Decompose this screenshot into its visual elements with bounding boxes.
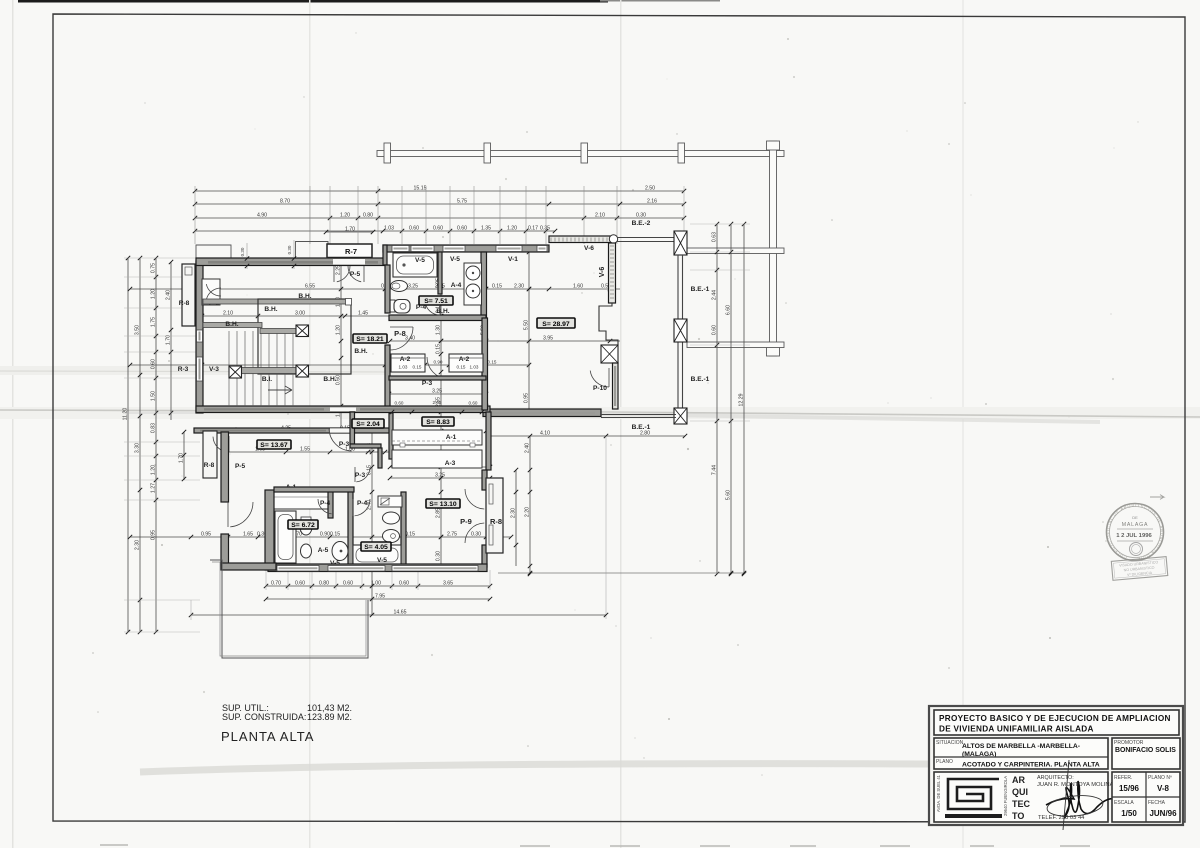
svg-text:2.10: 2.10 xyxy=(595,213,605,219)
svg-text:1.35: 1.35 xyxy=(481,226,491,232)
svg-text:V-6: V-6 xyxy=(599,267,606,278)
svg-text:3.50: 3.50 xyxy=(135,325,141,335)
svg-text:2.85: 2.85 xyxy=(436,508,442,518)
svg-text:0.60: 0.60 xyxy=(151,359,157,369)
svg-text:1.20: 1.20 xyxy=(336,325,342,335)
svg-text:123.89 M2.: 123.89 M2. xyxy=(307,712,352,722)
svg-text:0.75: 0.75 xyxy=(151,263,157,273)
svg-text:B.H.: B.H. xyxy=(323,376,336,383)
svg-text:0.60: 0.60 xyxy=(295,581,305,587)
svg-text:R-3: R-3 xyxy=(178,366,189,373)
svg-text:QUI: QUI xyxy=(1012,787,1028,797)
svg-text:2.30: 2.30 xyxy=(514,284,524,290)
svg-text:1.27: 1.27 xyxy=(151,483,157,493)
svg-text:3.25: 3.25 xyxy=(408,284,418,290)
svg-text:P-5: P-5 xyxy=(235,463,246,470)
svg-text:R-7: R-7 xyxy=(345,247,357,256)
svg-text:7.44: 7.44 xyxy=(712,465,718,475)
svg-text:A-3: A-3 xyxy=(445,460,456,467)
svg-text:PROMOTOR: PROMOTOR xyxy=(1114,740,1144,746)
svg-text:0.60: 0.60 xyxy=(469,401,478,406)
svg-text:1.20: 1.20 xyxy=(151,465,157,475)
svg-text:29640 FUENGIROLA: 29640 FUENGIROLA xyxy=(1003,776,1008,816)
svg-text:P-10: P-10 xyxy=(593,385,607,392)
svg-text:1.20: 1.20 xyxy=(151,289,157,299)
svg-text:2.75: 2.75 xyxy=(447,532,457,538)
svg-text:0.15: 0.15 xyxy=(436,344,442,354)
svg-text:1.50: 1.50 xyxy=(151,391,157,401)
svg-text:V-5: V-5 xyxy=(377,557,387,564)
svg-text:1.30: 1.30 xyxy=(436,325,442,335)
svg-text:P-8: P-8 xyxy=(394,329,406,338)
svg-text:ALTOS DE MARBELLA -MARBELLA-: ALTOS DE MARBELLA -MARBELLA- xyxy=(962,743,1080,750)
svg-text:1.75: 1.75 xyxy=(151,317,157,327)
svg-text:8.70: 8.70 xyxy=(280,199,290,205)
svg-text:P-3: P-3 xyxy=(422,380,433,387)
svg-text:P-5: P-5 xyxy=(350,271,361,278)
svg-text:P-9: P-9 xyxy=(460,517,472,526)
svg-text:1.03: 1.03 xyxy=(470,365,479,370)
svg-text:1.03: 1.03 xyxy=(384,226,394,232)
svg-text:5.50: 5.50 xyxy=(524,320,530,330)
svg-text:0.900.15: 0.900.15 xyxy=(320,532,340,538)
svg-text:2.44: 2.44 xyxy=(712,290,718,300)
svg-text:1.70: 1.70 xyxy=(345,227,355,233)
svg-text:1.20: 1.20 xyxy=(507,226,517,232)
svg-text:PROYECTO BASICO Y DE EJECUCION: PROYECTO BASICO Y DE EJECUCION DE AMPLIA… xyxy=(939,714,1171,723)
svg-text:B.H.: B.H. xyxy=(225,321,238,328)
svg-text:S= 4.05: S= 4.05 xyxy=(364,544,388,551)
svg-text:P-4: P-4 xyxy=(320,500,331,507)
svg-text:6.60: 6.60 xyxy=(726,305,732,315)
svg-text:2.80: 2.80 xyxy=(640,431,650,437)
svg-text:1.70: 1.70 xyxy=(166,335,172,345)
svg-text:B.E.-2: B.E.-2 xyxy=(632,220,651,227)
svg-text:2.30: 2.30 xyxy=(135,540,141,550)
svg-text:AVDA. DE SUEL 41: AVDA. DE SUEL 41 xyxy=(936,774,941,812)
svg-text:R-8: R-8 xyxy=(204,462,215,469)
svg-text:B.I.: B.I. xyxy=(262,376,272,383)
svg-text:ACOTADO Y CARPINTERIA. PLANTA: ACOTADO Y CARPINTERIA. PLANTA ALTA xyxy=(962,762,1100,769)
svg-text:B.H.: B.H. xyxy=(354,348,367,355)
svg-text:B.H.: B.H. xyxy=(436,308,449,315)
svg-text:SITUACION: SITUACION xyxy=(936,740,964,746)
svg-text:14.65: 14.65 xyxy=(394,610,407,616)
svg-text:1.65: 1.65 xyxy=(243,532,253,538)
svg-text:TO: TO xyxy=(1012,811,1024,821)
svg-text:SUP. CONSTRUIDA:: SUP. CONSTRUIDA: xyxy=(222,712,306,722)
svg-text:0.60: 0.60 xyxy=(395,401,404,406)
svg-text:1 2 JUL 1996: 1 2 JUL 1996 xyxy=(1116,533,1152,539)
svg-text:JUAN R. MONTOYA MOLINA: JUAN R. MONTOYA MOLINA xyxy=(1037,782,1114,788)
svg-text:B.E.-1: B.E.-1 xyxy=(691,286,710,293)
svg-text:V-1: V-1 xyxy=(508,256,518,263)
svg-text:2.05: 2.05 xyxy=(433,400,442,405)
svg-text:3.65: 3.65 xyxy=(443,581,453,587)
svg-text:A-5: A-5 xyxy=(318,547,329,554)
svg-text:3.00: 3.00 xyxy=(295,311,305,317)
svg-text:TEC: TEC xyxy=(1012,799,1031,809)
svg-text:V-3: V-3 xyxy=(209,366,219,373)
svg-text:0.30: 0.30 xyxy=(436,551,442,561)
svg-text:1.03: 1.03 xyxy=(399,365,408,370)
svg-text:S= 28.97: S= 28.97 xyxy=(542,321,570,328)
svg-text:12.29: 12.29 xyxy=(739,393,745,406)
svg-text:3.25: 3.25 xyxy=(432,389,442,395)
svg-text:2.40: 2.40 xyxy=(166,290,172,300)
svg-text:5.75: 5.75 xyxy=(457,199,467,205)
svg-text:A-2: A-2 xyxy=(400,356,411,363)
svg-text:R-8: R-8 xyxy=(179,300,190,307)
svg-text:P-3: P-3 xyxy=(355,472,366,479)
svg-text:R-8: R-8 xyxy=(490,517,502,526)
svg-text:0.35: 0.35 xyxy=(540,226,550,232)
svg-text:2.40: 2.40 xyxy=(525,443,531,453)
svg-text:0.95: 0.95 xyxy=(524,393,530,403)
svg-text:0.83: 0.83 xyxy=(151,423,157,433)
svg-text:REFER.: REFER. xyxy=(1114,775,1132,781)
svg-text:PLANO Nº: PLANO Nº xyxy=(1148,775,1172,781)
svg-text:1.45: 1.45 xyxy=(358,311,368,317)
svg-text:0.15: 0.15 xyxy=(492,284,502,290)
svg-text:ARQUITECTO:: ARQUITECTO: xyxy=(1037,775,1074,781)
svg-text:3.30: 3.30 xyxy=(135,443,141,453)
svg-text:2.30: 2.30 xyxy=(511,508,517,518)
svg-text:0.60: 0.60 xyxy=(399,581,409,587)
svg-text:PLANO: PLANO xyxy=(936,759,953,765)
svg-text:P-3: P-3 xyxy=(339,441,350,448)
svg-text:2.25: 2.25 xyxy=(336,265,342,275)
svg-text:3.25: 3.25 xyxy=(435,473,445,479)
svg-text:0.70: 0.70 xyxy=(271,581,281,587)
svg-text:6.55: 6.55 xyxy=(305,284,315,290)
svg-text:3.95: 3.95 xyxy=(543,336,553,342)
svg-text:JUN/96: JUN/96 xyxy=(1149,809,1177,818)
svg-text:11.20: 11.20 xyxy=(123,408,129,421)
svg-text:0.30: 0.30 xyxy=(287,245,292,254)
svg-text:B.E.-1: B.E.-1 xyxy=(691,376,710,383)
svg-text:4.10: 4.10 xyxy=(540,431,550,437)
svg-text:0.95: 0.95 xyxy=(151,530,157,540)
svg-text:BONIFACIO SOLIS: BONIFACIO SOLIS xyxy=(1115,747,1176,754)
svg-text:5.60: 5.60 xyxy=(726,490,732,500)
svg-text:0.60: 0.60 xyxy=(409,226,419,232)
svg-text:4.90: 4.90 xyxy=(257,213,267,219)
svg-text:S= 2.04: S= 2.04 xyxy=(356,421,380,428)
svg-text:2.20: 2.20 xyxy=(525,507,531,517)
svg-text:2.10: 2.10 xyxy=(223,311,233,317)
svg-text:B.H.: B.H. xyxy=(264,306,277,313)
svg-text:0.30: 0.30 xyxy=(636,213,646,219)
svg-text:S= 13.10: S= 13.10 xyxy=(429,501,457,508)
svg-text:0.17: 0.17 xyxy=(528,226,538,232)
svg-text:V-6: V-6 xyxy=(584,245,594,252)
svg-text:V-5: V-5 xyxy=(450,256,460,263)
svg-text:0.95: 0.95 xyxy=(201,532,211,538)
svg-text:AR: AR xyxy=(1012,775,1025,785)
svg-text:A-2: A-2 xyxy=(459,356,470,363)
svg-text:V-8: V-8 xyxy=(1157,784,1170,793)
svg-text:DE VIVIENDA UNIFAMILIAR AISLAD: DE VIVIENDA UNIFAMILIAR AISLADA xyxy=(939,725,1094,734)
svg-text:0.15: 0.15 xyxy=(413,365,422,370)
svg-text:FECHA: FECHA xyxy=(1148,800,1166,806)
svg-text:15.15: 15.15 xyxy=(414,186,427,192)
svg-text:0.80: 0.80 xyxy=(319,581,329,587)
svg-text:ESCALA: ESCALA xyxy=(1114,800,1134,806)
svg-text:B.H.: B.H. xyxy=(298,293,311,300)
svg-text:0.60: 0.60 xyxy=(433,226,443,232)
svg-text:A-1: A-1 xyxy=(446,434,457,441)
svg-text:2.50: 2.50 xyxy=(645,186,655,192)
svg-text:S= 18.21: S= 18.21 xyxy=(356,336,384,343)
svg-text:0.60: 0.60 xyxy=(712,325,718,335)
svg-text:A-4: A-4 xyxy=(451,282,462,289)
svg-text:1/50: 1/50 xyxy=(1121,809,1137,818)
svg-text:DE: DE xyxy=(1132,515,1138,520)
svg-text:0.30: 0.30 xyxy=(240,247,245,256)
svg-text:1.60: 1.60 xyxy=(573,284,583,290)
svg-text:S= 8.83: S= 8.83 xyxy=(426,419,450,426)
svg-text:1.20: 1.20 xyxy=(340,213,350,219)
svg-text:0.15: 0.15 xyxy=(457,365,466,370)
svg-text:0.63: 0.63 xyxy=(712,232,718,242)
svg-text:0.30: 0.30 xyxy=(471,532,481,538)
svg-text:2.16: 2.16 xyxy=(647,199,657,205)
svg-text:15/96: 15/96 xyxy=(1119,784,1140,793)
svg-text:1.55: 1.55 xyxy=(300,447,310,453)
svg-text:S= 7.51: S= 7.51 xyxy=(424,298,448,305)
svg-text:B.E.-1: B.E.-1 xyxy=(632,424,651,431)
svg-text:7.95: 7.95 xyxy=(375,594,385,600)
svg-text:P-4: P-4 xyxy=(357,500,368,507)
svg-text:MALAGA: MALAGA xyxy=(1122,522,1148,528)
svg-text:0.15: 0.15 xyxy=(488,360,497,365)
svg-text:0.60: 0.60 xyxy=(343,581,353,587)
svg-text:0.80: 0.80 xyxy=(363,213,373,219)
svg-text:0.60: 0.60 xyxy=(457,226,467,232)
svg-text:0.90: 0.90 xyxy=(434,360,443,365)
svg-text:S= 13.67: S= 13.67 xyxy=(260,442,288,449)
svg-text:1.70: 1.70 xyxy=(179,453,185,463)
svg-text:S= 6.72: S= 6.72 xyxy=(291,522,315,529)
svg-text:PLANTA ALTA: PLANTA ALTA xyxy=(221,729,314,744)
svg-text:V-5: V-5 xyxy=(415,257,425,264)
